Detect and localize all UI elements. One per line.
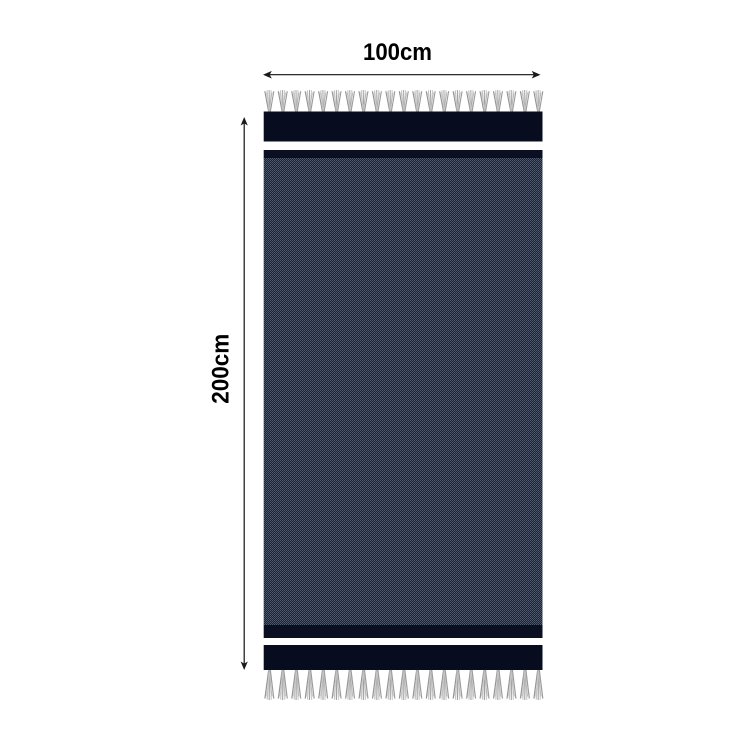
svg-text:200cm: 200cm	[208, 334, 235, 404]
svg-text:100cm: 100cm	[363, 39, 432, 66]
